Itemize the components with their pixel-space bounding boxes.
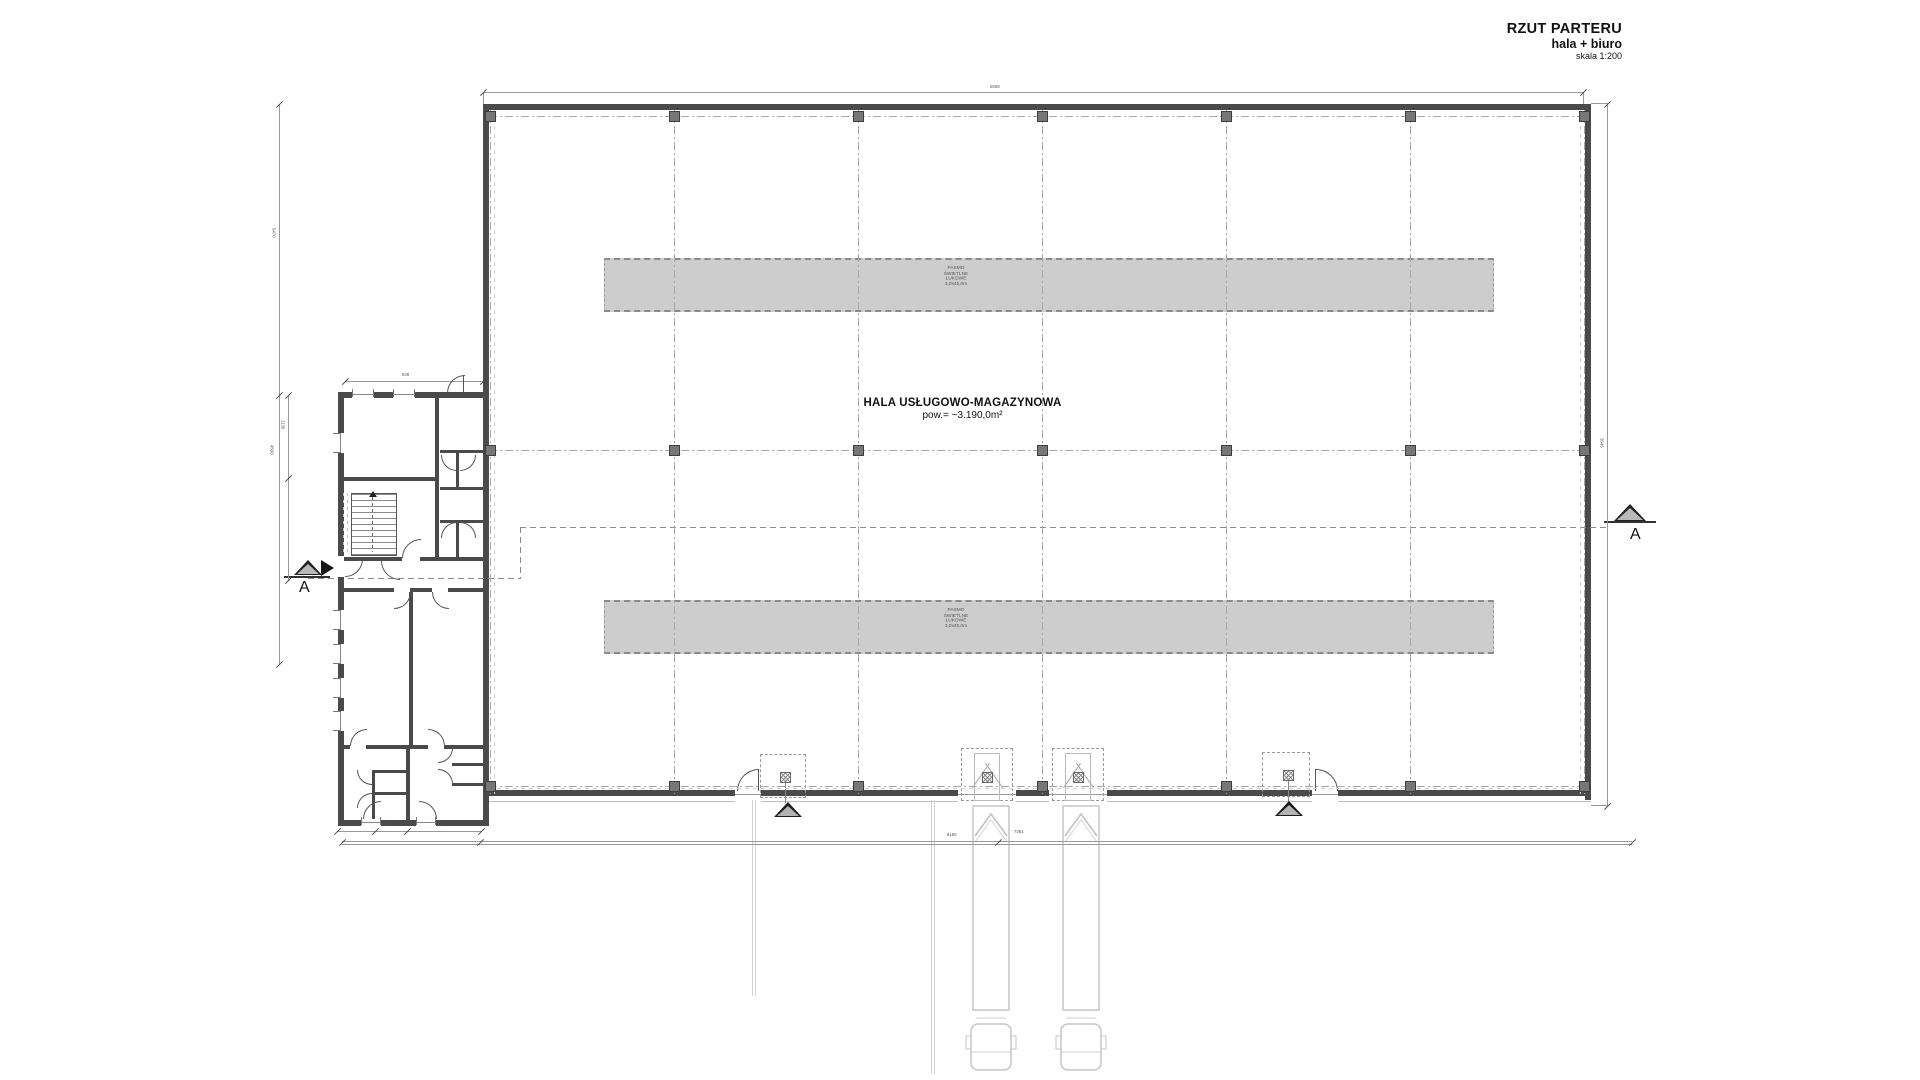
window-glass-line xyxy=(361,822,381,823)
door-arc xyxy=(432,592,449,609)
interior-wall xyxy=(420,557,485,561)
column xyxy=(853,111,864,122)
door-arc xyxy=(460,455,476,471)
dim-tick xyxy=(285,577,292,584)
stair-direction-line xyxy=(372,497,373,552)
skylight-text-line: 3,0x45,0m xyxy=(918,624,995,629)
column xyxy=(485,111,496,122)
section-marker-right xyxy=(1604,521,1656,523)
dim-label: 3545 xyxy=(1599,438,1603,448)
hall-name: HALA USŁUGOWO-MAGAZYNOWA xyxy=(820,397,1105,409)
window-sill-tick xyxy=(352,389,353,397)
dim-ext xyxy=(1591,103,1608,104)
dim-line-left-outer xyxy=(279,104,280,664)
grate-icon xyxy=(1073,772,1084,783)
grate-icon xyxy=(780,772,791,783)
column xyxy=(1405,111,1416,122)
door-arc xyxy=(441,522,457,538)
interior-wall xyxy=(440,487,485,490)
window-sill-tick xyxy=(333,730,341,731)
dim-label: 8195 xyxy=(947,833,957,837)
entry-triangle-icon xyxy=(777,806,799,816)
skylight-strip-lower xyxy=(604,600,1494,654)
column xyxy=(1579,445,1590,456)
drawing-scale: skala 1:200 xyxy=(1318,52,1622,62)
interior-wall xyxy=(406,749,410,820)
interior-wall xyxy=(372,792,406,795)
dim-label: 4500 xyxy=(269,445,273,455)
dock-guide-line xyxy=(752,800,753,996)
entrance-arrow-icon xyxy=(321,560,334,576)
dim-ext xyxy=(1591,805,1608,806)
column xyxy=(1405,445,1416,456)
window-sill-tick xyxy=(333,663,341,664)
section-line-jog xyxy=(520,527,521,579)
dim-line-right xyxy=(1607,104,1608,806)
section-line-right xyxy=(520,527,1610,528)
window-sill-tick xyxy=(373,389,374,397)
threshold xyxy=(735,794,761,795)
dim-ext xyxy=(483,92,484,104)
column xyxy=(669,781,680,792)
canopy-stem xyxy=(1288,781,1289,803)
interior-wall xyxy=(452,783,485,786)
office-wall-right-ext xyxy=(483,800,489,826)
column xyxy=(485,445,496,456)
column xyxy=(1579,111,1590,122)
column xyxy=(853,445,864,456)
dim-label: 5470 xyxy=(271,228,275,238)
window-glass-line xyxy=(352,394,374,395)
title-block: RZUT PARTERU hala + biuro skala 1:200 xyxy=(1318,22,1622,62)
column xyxy=(669,445,680,456)
window xyxy=(393,391,415,399)
interior-wall xyxy=(452,763,485,766)
interior-wall xyxy=(440,450,485,453)
dim-label: 1135 xyxy=(280,420,284,429)
dim-label: 7381 xyxy=(1014,830,1024,834)
dim-line-bottom-long xyxy=(342,841,1632,842)
window-sill-tick xyxy=(333,433,341,434)
dim-line-bottom-long xyxy=(342,844,1632,845)
window-glass-line xyxy=(340,644,341,664)
window xyxy=(337,678,345,698)
threshold xyxy=(1312,794,1338,795)
column xyxy=(1221,445,1232,456)
section-arrow-left-icon xyxy=(297,564,319,574)
door-leaf xyxy=(463,375,464,392)
window xyxy=(416,819,436,827)
window-sill-tick xyxy=(333,452,341,453)
window-sill-tick xyxy=(333,678,341,679)
window xyxy=(337,610,345,630)
door-arc xyxy=(438,748,453,763)
window-glass-line xyxy=(340,678,341,698)
window-sill-tick xyxy=(333,697,341,698)
window xyxy=(337,711,345,731)
door-arc xyxy=(350,729,367,746)
skylight-text-line: 3,0x45,0m xyxy=(918,282,995,287)
stair-hatch-line xyxy=(343,493,344,556)
column xyxy=(1037,111,1048,122)
window-sill-tick xyxy=(414,389,415,397)
entry-triangle-icon xyxy=(1278,805,1300,815)
door-arc xyxy=(460,522,476,538)
dim-ext xyxy=(1583,92,1584,104)
door-arc xyxy=(428,729,445,746)
column xyxy=(1221,781,1232,792)
interior-wall xyxy=(410,588,432,592)
window-sill-tick xyxy=(416,817,417,825)
dim-label: 415 xyxy=(350,823,357,827)
drawing-title: RZUT PARTERU xyxy=(1318,22,1622,38)
dim-tick xyxy=(276,661,283,668)
hall-wall-bottom-face xyxy=(483,801,1591,802)
window-glass-line xyxy=(340,711,341,731)
dim-line-left-inner xyxy=(288,395,289,581)
window xyxy=(337,433,345,453)
staircase xyxy=(351,493,397,556)
column xyxy=(669,111,680,122)
dim-label: 5598 xyxy=(990,85,1000,89)
window-sill-tick xyxy=(333,644,341,645)
window xyxy=(337,644,345,664)
column xyxy=(1037,781,1048,792)
window-sill-tick xyxy=(380,817,381,825)
window-sill-tick xyxy=(333,629,341,630)
interior-wall xyxy=(344,477,437,481)
grate-icon xyxy=(982,772,993,783)
window-glass-line xyxy=(416,822,436,823)
section-arrow-right-icon xyxy=(1617,508,1643,520)
hall-label: HALA USŁUGOWO-MAGAZYNOWA pow.= ~3.190,0m… xyxy=(820,397,1105,421)
floor-plan-canvas: RZUT PARTERU hala + biuro skala 1:200 PA… xyxy=(0,0,1920,1080)
window-sill-tick xyxy=(333,711,341,712)
dim-line-office-bottom xyxy=(337,831,482,832)
window xyxy=(361,819,381,827)
window-sill-tick xyxy=(393,389,394,397)
column xyxy=(1221,111,1232,122)
hall-area: pow.= ~3.190,0m² xyxy=(820,410,1105,421)
column xyxy=(1405,781,1416,792)
dock-guide-line xyxy=(755,800,756,996)
dim-label: 415 xyxy=(437,823,444,827)
skylight-strip-lower-label: PASMO ŚWIETLNE ŁUKOWE 3,0x45,0m xyxy=(918,608,995,629)
window xyxy=(352,391,374,399)
dim-label: 104 xyxy=(384,823,391,827)
office-entrance-door xyxy=(345,559,363,577)
dim-label: 938 xyxy=(402,373,409,377)
stair-hatch-line xyxy=(347,493,348,556)
office-wall-left xyxy=(338,392,344,826)
column xyxy=(853,781,864,792)
drawing-subtitle: hala + biuro xyxy=(1318,38,1622,52)
column xyxy=(1037,445,1048,456)
section-letter-right: A xyxy=(1630,526,1641,544)
section-letter-left: A xyxy=(299,579,310,597)
interior-wall xyxy=(372,770,406,773)
stair-direction-arrow-icon xyxy=(369,491,377,497)
door-arc xyxy=(441,455,457,471)
dim-line-top xyxy=(483,92,1584,93)
window-glass-line xyxy=(393,394,415,395)
window-sill-tick xyxy=(361,817,362,825)
skylight-strip-upper xyxy=(604,258,1494,312)
window-sill-tick xyxy=(435,817,436,825)
column xyxy=(1579,781,1590,792)
door-arc xyxy=(402,539,421,558)
door-arc xyxy=(438,769,453,784)
column xyxy=(485,781,496,792)
dim-tick xyxy=(478,828,485,835)
interior-wall xyxy=(409,592,413,745)
interior-wall xyxy=(448,588,485,592)
window-glass-line xyxy=(340,433,341,453)
door-arc xyxy=(357,770,372,785)
window-glass-line xyxy=(340,610,341,630)
skylight-strip-upper-label: PASMO ŚWIETLNE ŁUKOWE 3,0x45,0m xyxy=(918,266,995,287)
hall-wall-top xyxy=(483,104,1591,110)
interior-wall xyxy=(344,588,394,592)
interior-wall xyxy=(366,745,428,749)
window-sill-tick xyxy=(333,610,341,611)
grate-icon xyxy=(1283,770,1294,781)
